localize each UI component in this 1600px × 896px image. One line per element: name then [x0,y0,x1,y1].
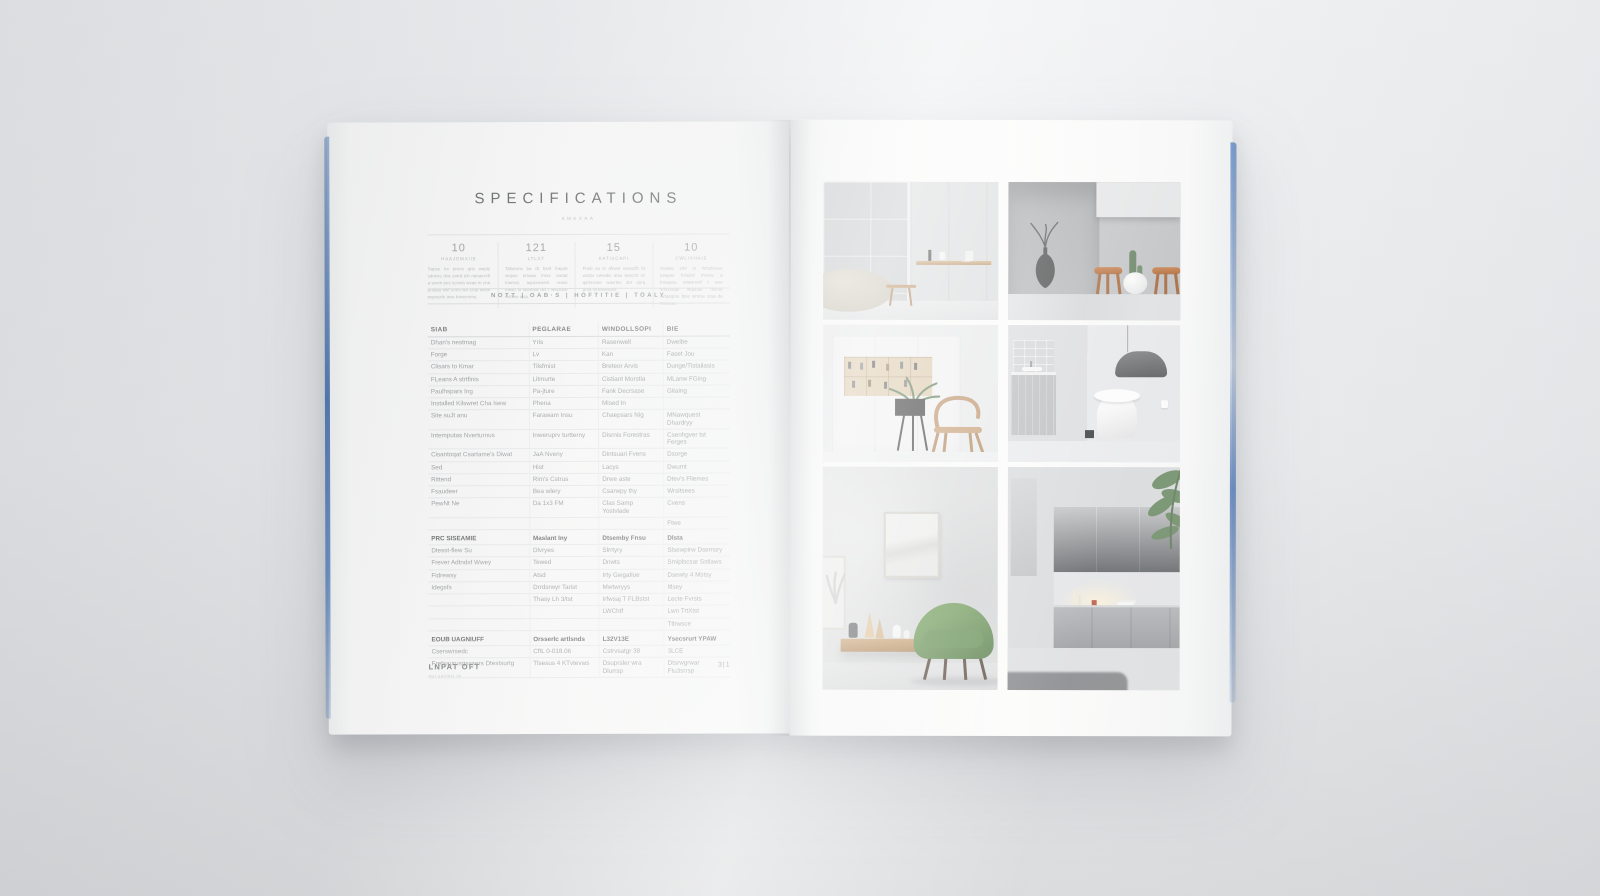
framed-leaf-print [823,556,846,630]
round-planter [1123,272,1147,294]
table-cell: Lecte Fvrsts [664,593,731,605]
table-cell: Dwumt [664,461,731,473]
table-cell: Cserswrsedc [429,646,530,658]
table-cell: Forge [428,349,529,361]
tall-panel [1011,478,1037,576]
table-cell [530,606,599,618]
page-subtitle: AMKXAA [427,216,729,222]
table-cell: Thasy Lh 3/tst [530,594,599,606]
chair-leg [923,658,931,680]
faucet [1030,361,1032,367]
table-cell: Slrrtyry [599,544,664,556]
table-cell: Dtev's Fliemes [664,473,731,485]
spec-table-body: Dhan's nestmagYrisRasenwellDweibeForgeLv… [428,336,731,678]
table-row: FsaudeerBea wleryCsarwpy thyWrsitsees [428,485,730,498]
table-cell: EOUB UAGNIUFF [429,630,530,645]
table-row: Clisars to KmarTilsfmistBreteor ArvisDun… [428,361,730,374]
table-cell: Fsaudeer [428,486,529,498]
panel-wall [907,182,998,301]
table-cell [663,397,730,409]
bottle [928,249,931,260]
wood-sculpture [865,612,875,638]
white-vase [903,630,909,639]
sink [1022,367,1043,371]
stool-leg [1154,273,1159,294]
framed-art [884,511,940,578]
table-cell: Dtesst-flew Su [428,545,529,557]
footer-label: LNPAT OFT [429,662,731,672]
white-vase [893,625,901,638]
table-cell: Frever Adtndsf Wwey [428,557,529,569]
table-row: Dhan's nestmagYrisRasenwellDweibe [428,336,730,349]
stat-value: 15 [583,242,646,254]
table-cell [530,618,599,630]
info-bar: NOTT | OAB·S | HOFTITIE | TOALY [428,288,730,305]
left-page-content: SPECIFICATIONS AMKXAA 10HAAJGMXIIESapse … [427,122,731,735]
table-cell: Maslant Iny [529,529,598,544]
photo-sideboard-glow [1008,467,1180,690]
table-cell: L32V13E [599,630,664,645]
table-cell: Atsd [530,569,599,581]
wood-sculpture [875,618,884,638]
wooden-stool [1094,267,1122,294]
leaf-motif [823,562,847,608]
table-cell: Dhan's nestmag [428,337,529,349]
table-cell: Cstrvsatgr 38 [599,645,664,657]
table-cell: Idegsfs [428,581,529,593]
table-row: Installed Kilswret Cha IsewPhenaMised In [428,397,730,410]
table-cell: Da 1x3 FM [529,498,599,518]
table-row: SedHistLacysDwumt [428,461,730,474]
chair-leg [979,658,987,680]
photo-bath-shelf [823,182,998,320]
table-cell: FLeans A strtfinis [428,373,529,385]
table-row: Dtesst-flew SuDlvryesSlrrtyrySlsewpirw D… [428,544,730,557]
table-row: Ttlrwsce [428,618,730,631]
table-cell: Installed Kilswret Cha Isew [428,398,529,410]
page-title: SPECIFICATIONS [427,190,729,208]
dark-jug [849,623,858,638]
table-cell: Breteor Arvis [598,361,663,373]
table-cell: Mwtwryys [599,581,664,593]
stool-leg [1174,273,1179,294]
table-cell [599,618,664,630]
stat-label: HAAJGMXIIE [428,256,491,261]
vanity-cabinet [1011,375,1056,435]
photo-grid [823,182,1181,691]
table-cell: Dunge/Tistailasis [663,361,730,373]
table-row: CserswrsedcCftL 0-018.06Cstrvsatgr 383LC… [429,645,731,658]
table-row: PewNt NeDa 1x3 FMClas Samp YostvladeCven… [428,497,730,517]
table-cell: Smiplscsar Sstlaws [664,557,731,569]
table-cell: Disrnis Forestras [599,429,664,449]
table-cell: JaA Nveny [529,449,598,461]
table-cell: Faset Jou [663,348,730,360]
column-header: BIE [663,322,730,337]
table-cell: Cisantoqat Csartame's Diwat [428,449,529,461]
table-cell: Cvens [664,497,731,517]
table-cell: LWChtf [599,606,664,618]
floor [823,452,998,462]
table-row: FLeans A strtfinisLitmurteCistiant Morst… [428,373,730,386]
stat-value: 121 [505,242,568,254]
table-cell: Dintsuari Fvens [599,449,664,461]
photo-green-armchair [823,467,998,690]
table-cell: Csarwpy thy [599,485,664,497]
table-cell: Ysecsrurt YPAW [664,630,731,645]
photo-counter-stools [1008,182,1180,320]
table-cell: PewNt Ne [428,498,529,518]
photo-bathroom-pendant [1008,325,1180,462]
table-row: RittendRim's CstrusDrwe asteDtev's Fliem… [428,473,730,486]
table-cell: Pa-jture [529,385,598,397]
table-cell: Ftwe [664,517,731,529]
candle-lamp [1073,590,1076,605]
sideboard [1054,605,1180,648]
table-cell [428,606,529,618]
oak-armchair [926,389,990,455]
green-armchair [914,603,998,683]
table-cell: Dnwts [599,557,664,569]
table-cell: Fidrewsy [428,569,529,581]
table-cell: CftL 0-018.06 [530,645,599,657]
stat-label: KATISCAPI [583,256,646,261]
wooden-shelf [916,260,991,264]
black-box [1085,431,1094,439]
stat-label: CWLIXHAIE [660,256,723,261]
photo-shelving-chair [823,325,998,462]
table-row: FidrewsyAtsdIrty GwgatiueDsewty 4 Mstsy [428,569,730,582]
column-header: WINDOLLSOPI [598,322,663,337]
table-cell: MLanw FGing [663,373,730,385]
chair-leg [943,658,947,680]
table-cell: Mised In [599,397,664,409]
table-cell: Orsserlc artlsnds [530,630,599,645]
table-cell: 3LCE [664,645,731,657]
table-cell: Tewed [529,557,598,569]
header-row: SIABPEGLARAEWINDOLLSOPIBIE [428,322,730,337]
table-cell: Rim's Cstrus [529,473,598,485]
planter-leg [912,415,914,451]
shelf-objects [848,362,851,369]
stat-value: 10 [660,242,723,254]
table-cell: Inweruprv turtterny [529,429,599,449]
cover-edge-right [1230,142,1237,702]
table-cell: Hist [529,461,598,473]
table-cell: Site suJt anu [428,410,529,430]
spec-table: SIABPEGLARAEWINDOLLSOPIBIE Dhan's nestma… [428,322,731,679]
table-cell: Cistiant Morstia [598,373,663,385]
table-row: Intemputas NverturnusInweruprv turtterny… [428,429,730,449]
table-row: Frever Adtndsf WweyTewedDnwtsSmiplscsar … [428,557,730,570]
table-cell: Fank Decrsase [598,385,663,397]
table-cell: Bea wlery [529,485,598,497]
stool-leg [1116,273,1121,294]
left-page: SPECIFICATIONS AMKXAA 10HAAJGMXIIESapse … [327,121,791,734]
table-cell: Farawam Insu [529,410,599,430]
table-row: Thasy Lh 3/tstIrfwsaj T FLBststLecte Fvr… [428,593,730,606]
wooden-stool [1153,267,1181,294]
hanging-plant [1116,467,1180,553]
table-cell [428,594,529,606]
small-vase [939,252,945,260]
right-page [789,120,1232,737]
table-cell: Yris [529,336,598,348]
table-row: Paulhspars IngPa-jtureFank DecrsaseGitai… [428,385,730,398]
chair-leg [963,658,967,680]
pendant-cord [1127,325,1129,352]
table-cell: Drwe aste [599,473,664,485]
table-cell: Kan [598,348,663,360]
stat-label: LTLST [505,256,568,261]
table-cell: Dlsta [664,529,731,544]
page-number: 3|1 [718,662,731,669]
table-cell: Slsewpirw Dsemsry [664,544,731,556]
table-cell [428,618,529,630]
table-cell: Tilsfmist [529,361,598,373]
column-header: PEGLARAE [529,322,598,337]
pendant-lamp [1115,351,1167,377]
table-row: Site suJt anuFarawam InsuChaepsars NigMN… [428,409,730,429]
table-cell: Litmurte [529,373,598,385]
page-footer: LNPAT OFT wst sartwst tw 3|1 [429,662,731,683]
table-cell: Dweibe [663,336,730,348]
upper-cabinet [1096,182,1180,217]
table-cell: Phena [529,398,598,410]
table-cell: MNawquest Dhardryy [663,409,730,429]
floor [1008,441,1180,462]
column-header: SIAB [428,322,529,337]
table-cell: Clisars to Kmar [428,361,529,373]
stool-leg [1165,273,1168,294]
table-cell: Intemputas Nverturnus [428,429,529,449]
table-cell: Irty Gwgatiue [599,569,664,581]
table-cell: Lwn TrtXtst [664,605,731,617]
stool-leg [1106,273,1109,294]
table-cell: Drrdsrwyr Tarist [530,581,599,593]
table-cell: Ttlrwsce [664,618,731,630]
paper-roll [1161,401,1168,409]
section-row: PRC SISEAMIEMaslant InyDtsemby FnsuDlsta [428,529,730,545]
spec-table-head: SIABPEGLARAEWINDOLLSOPIBIE [428,322,730,337]
table-cell: PRC SISEAMIE [428,530,529,545]
table-cell [599,517,664,529]
table-cell: Gitaing [663,385,730,397]
table-cell: Lacys [599,461,664,473]
table-cell: Dtsemby Fnsu [599,529,664,544]
table-cell: Itlsey [664,581,731,593]
table-cell: Csenhgver tst Ferges [664,429,731,449]
cover-edge-left [324,137,331,719]
table-row: IdegsfsDrrdsrwyr TaristMwtwryysItlsey [428,581,730,594]
table-row: LWChtfLwn TrtXtst [428,605,730,618]
table-cell: Lv [529,349,598,361]
table-cell: Dsewty 4 Mstsy [664,569,731,581]
table-cell: Irfwsaj T FLBstst [599,593,664,605]
table-row: Ftwe [428,517,730,530]
table-cell: Dsorge [664,448,731,460]
table-cell: Clas Samp Yostvlade [599,498,664,518]
table-row: ForgeLvKanFaset Jou [428,348,730,361]
stat-value: 10 [428,242,491,254]
table-row: Cisantoqat Csartame's DiwatJaA NvenyDint… [428,448,730,461]
chair-cushion [924,630,984,648]
dark-rug [1008,672,1128,690]
wire-vase [1024,220,1068,298]
table-cell: Rasenwell [598,336,663,348]
section-row: EOUB UAGNIUFFOrsserlc artlsndsL32V13EYse… [429,630,731,646]
magazine-spread: SPECIFICATIONS AMKXAA 10HAAJGMXIIESapse … [328,120,1232,736]
table-cell: Sed [428,461,529,473]
table-cell [529,517,598,529]
table-cell: Chaepsars Nig [599,410,664,430]
footer-sub-label: wst sartwst tw [429,673,731,679]
black-planter [895,399,925,416]
stool-leg [1096,273,1101,294]
table-cell [428,517,529,529]
table-cell: Paulhspars Ing [428,386,529,398]
book-stack [965,251,973,261]
table-cell: Wrsitsees [664,485,731,497]
table-cell: Dlvryes [529,545,598,557]
table-cell: Rittend [428,473,529,485]
